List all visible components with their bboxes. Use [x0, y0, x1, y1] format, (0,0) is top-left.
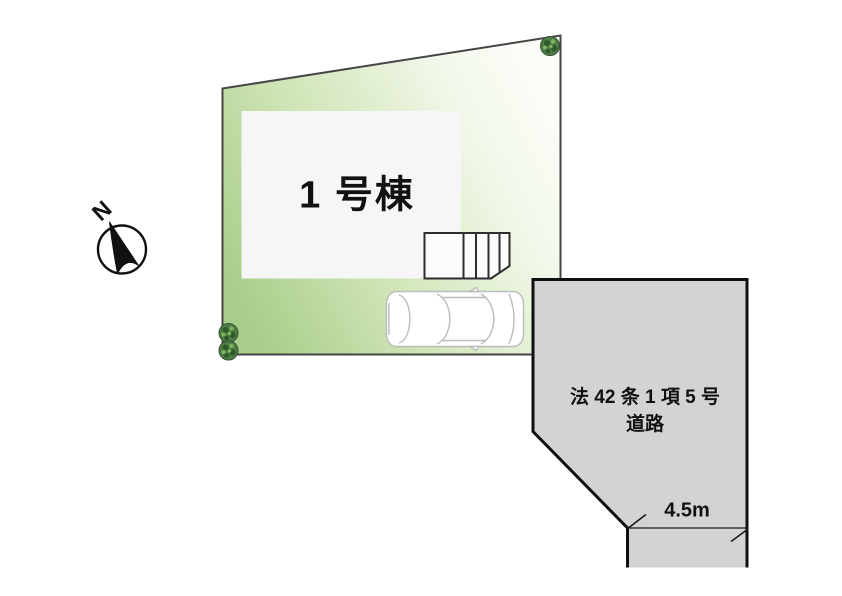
site-plan-drawing: [0, 0, 842, 596]
tree-icon: [541, 37, 560, 56]
site-plan-canvas: 1 号棟 法 42 条 1 項 5 号 道路 4.5m N: [0, 0, 842, 596]
compass-north-icon: [98, 222, 146, 274]
road-label-line2: 道路: [570, 411, 720, 438]
tree-icon: [219, 324, 238, 343]
road-label-line1: 法 42 条 1 項 5 号: [570, 384, 720, 411]
road-label: 法 42 条 1 項 5 号 道路: [570, 384, 720, 438]
tree-icon: [219, 341, 238, 360]
car-top-view-icon: [387, 288, 524, 351]
entrance-steps: [425, 233, 510, 279]
building-label: 1 号棟: [299, 164, 415, 219]
road-width-label: 4.5m: [664, 500, 710, 523]
